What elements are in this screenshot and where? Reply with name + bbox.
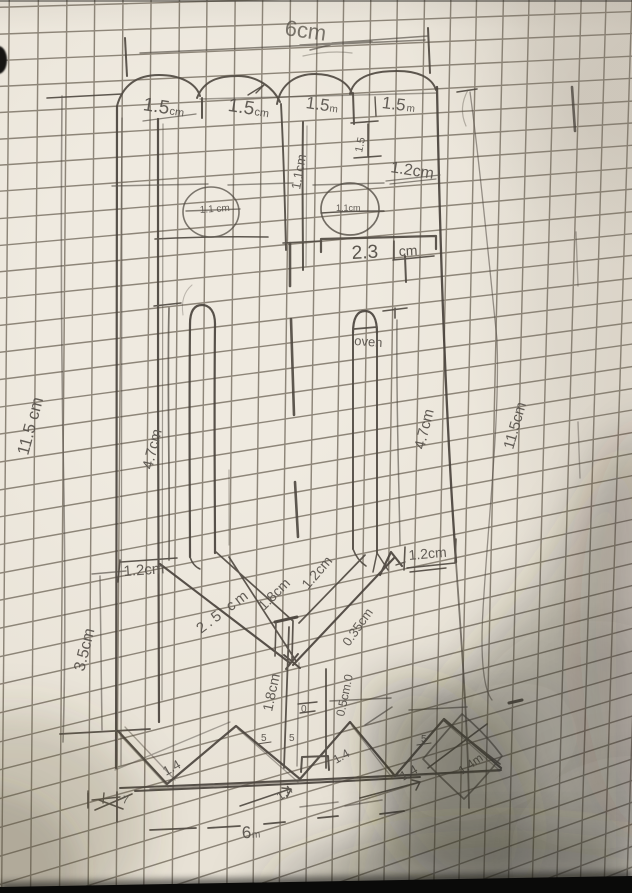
svg-text:2.3: 2.3 — [351, 242, 378, 264]
svg-text:1.8cm: 1.8cm — [255, 575, 293, 613]
svg-text:1.4: 1.4 — [331, 746, 353, 767]
svg-text:1.1cm: 1.1cm — [288, 153, 309, 190]
svg-text:m: m — [406, 103, 416, 115]
svg-text:1.5: 1.5 — [353, 136, 368, 153]
svg-text:1.5: 1.5 — [142, 94, 171, 119]
svg-text:0.5cm.0: 0.5cm.0 — [333, 673, 356, 718]
svg-text:4.7cm: 4.7cm — [411, 407, 437, 451]
svg-text:1.4: 1.4 — [397, 762, 420, 784]
svg-text:cm: cm — [254, 106, 270, 120]
svg-text:7: 7 — [122, 794, 130, 807]
svg-text:1.4: 1.4 — [160, 757, 183, 779]
svg-text:5: 5 — [289, 733, 295, 744]
svg-text:1.2cm: 1.2cm — [123, 560, 165, 580]
svg-text:1.1cm: 1.1cm — [336, 203, 361, 213]
svg-text:3.5cm: 3.5cm — [71, 627, 98, 673]
svg-text:0: 0 — [301, 704, 307, 715]
svg-text:1.5: 1.5 — [381, 93, 407, 115]
svg-text:cm: cm — [398, 242, 417, 259]
svg-text:1.2cm: 1.2cm — [408, 544, 447, 563]
svg-text:11.5 cm: 11.5 cm — [14, 395, 48, 457]
svg-text:m: m — [252, 829, 261, 840]
svg-text:m: m — [329, 103, 339, 115]
svg-text:1.5: 1.5 — [227, 95, 256, 120]
svg-text:1.2cm: 1.2cm — [298, 553, 335, 592]
svg-text:4.7cm: 4.7cm — [139, 427, 165, 471]
svg-text:1.5: 1.5 — [305, 93, 331, 115]
svg-text:6: 6 — [241, 823, 251, 842]
svg-text:11.5cm: 11.5cm — [501, 400, 531, 451]
svg-text:6cm: 6cm — [283, 15, 328, 46]
svg-text:oven: oven — [354, 333, 383, 350]
svg-text:1.8cm: 1.8cm — [259, 672, 283, 713]
